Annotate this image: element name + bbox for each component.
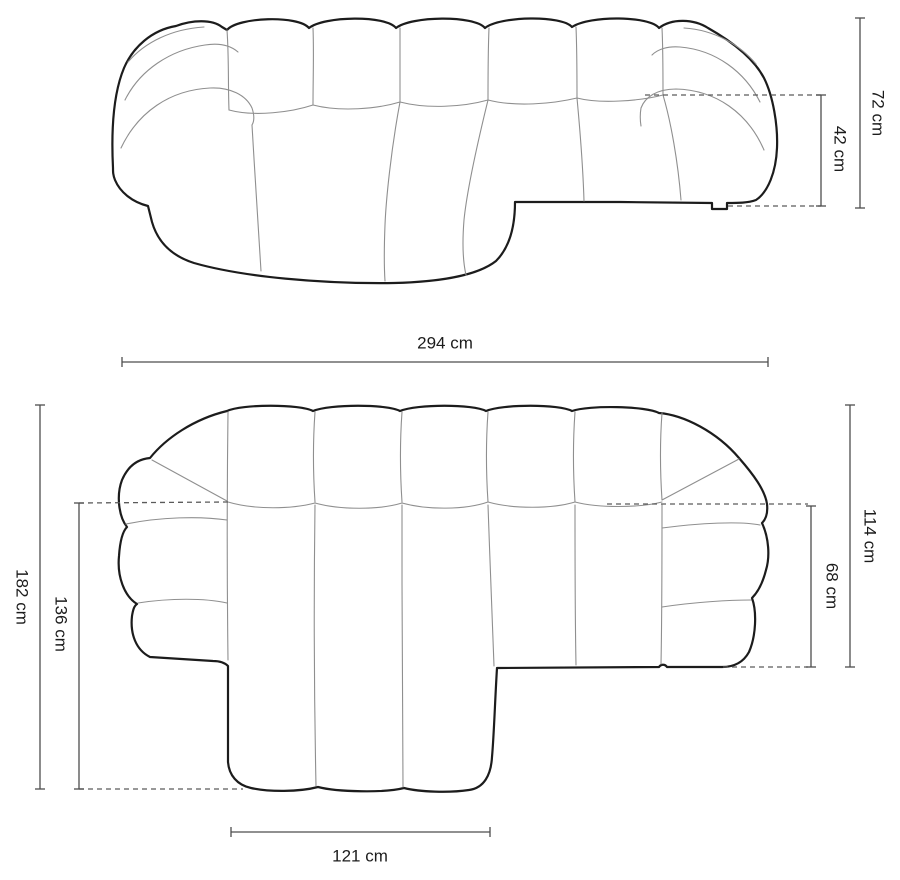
plan-side-depth-label: 114 cm: [861, 509, 880, 564]
plan-seat-depth-label: 68 cm: [823, 563, 842, 609]
front-height-label: 72 cm: [869, 90, 888, 136]
plan-chaise-inner-depth-label: 136 cm: [52, 596, 71, 652]
plan-sofa-outline: [119, 406, 769, 792]
plan-width-label: 294 cm: [417, 333, 473, 352]
plan-chaise-width-label: 121 cm: [332, 846, 388, 865]
front-seat-height-label: 42 cm: [831, 126, 850, 172]
front-sofa-outline: [112, 18, 777, 283]
plan-width-dimension: 294 cm: [122, 333, 768, 367]
front-view: [112, 18, 777, 283]
sofa-dimension-diagram: 72 cm 42 cm 294 cm 182 cm 136 cm: [0, 0, 900, 880]
diagram-svg: 72 cm 42 cm 294 cm 182 cm 136 cm: [0, 0, 900, 880]
plan-total-depth-label: 182 cm: [13, 569, 32, 625]
plan-view: [119, 406, 769, 792]
